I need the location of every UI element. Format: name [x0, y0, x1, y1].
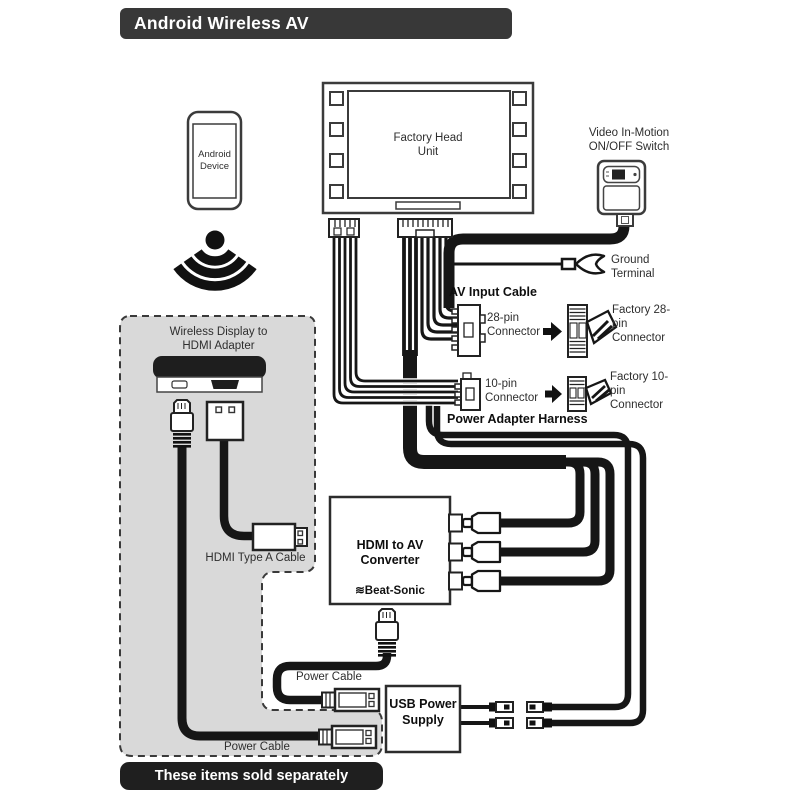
video-switch-icon [598, 161, 645, 226]
factory-pin28-label: Factory 28-pin Connector [612, 303, 678, 345]
spade-connectors [489, 702, 552, 728]
head-unit-label: Factory Head Unit [388, 131, 468, 159]
wiring-diagram-art [0, 0, 800, 800]
micro-usb-plug-converter [376, 609, 398, 657]
wireless-adapter-icon [153, 356, 266, 392]
brand-logo: ≋Beat-Sonic [336, 583, 444, 597]
10-pin-connector-icon [455, 373, 480, 410]
android-device-label: Android Device [188, 149, 241, 172]
converter-label: HDMI to AV Converter [340, 538, 440, 569]
usb-power-supply-label: USB Power Supply [389, 696, 457, 729]
hdmi-cable-label: HDMI Type A Cable [198, 551, 313, 565]
rca-jacks-and-plugs [449, 513, 500, 591]
power-adapter-harness-label: Power Adapter Harness [447, 412, 637, 427]
rca-cables [500, 462, 610, 581]
factory-28-pin-icon [568, 305, 616, 357]
usb-a-plug-top [322, 689, 379, 711]
power-cable-top-label: Power Cable [296, 670, 362, 684]
adapter-usb-port [172, 381, 187, 388]
ground-terminal-label: Ground Terminal [611, 253, 673, 281]
ground-terminal-icon [562, 255, 604, 274]
hdmi-plug-right [253, 524, 307, 550]
pin28-label: 28-pin Connector [487, 311, 557, 339]
av-input-cable-label: AV Input Cable [449, 285, 579, 300]
pin10-label: 10-pin Connector [485, 377, 555, 405]
head-unit-connector-middle [398, 219, 452, 237]
brand-wave-icon: ≋ [355, 585, 365, 597]
wifi-icon [177, 231, 252, 287]
usb-a-plug-bottom [319, 726, 376, 748]
hdmi-plug-up [207, 402, 243, 440]
diagram-canvas: Android Wireless AV Android Device Facto… [0, 0, 800, 800]
psu-wires [458, 707, 490, 723]
brand-name: Beat-Sonic [365, 585, 425, 597]
adapter-hdmi-port [211, 380, 239, 389]
page-title: Android Wireless AV [120, 8, 512, 39]
video-switch-label: Video In-Motion ON/OFF Switch [579, 126, 679, 154]
head-unit-connector-left [329, 219, 359, 237]
factory-pin10-label: Factory 10-pin Connector [610, 370, 676, 412]
power-cable-bottom-label: Power Cable [224, 740, 290, 754]
28-pin-connector-icon [452, 305, 485, 356]
wireless-adapter-label: Wireless Display to HDMI Adapter [156, 325, 281, 353]
head-unit-slot [396, 202, 460, 209]
factory-10-pin-icon [568, 377, 611, 411]
sold-separately-banner: These items sold separately [120, 762, 383, 790]
switch-slider [612, 170, 625, 180]
